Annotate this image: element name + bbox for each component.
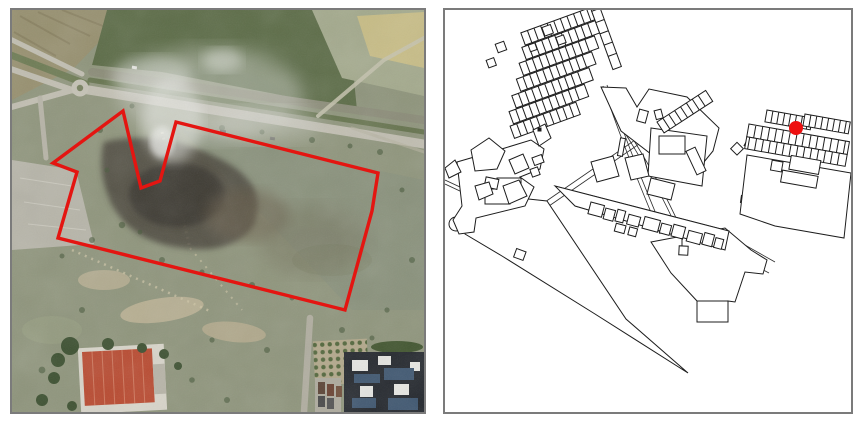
map-panel (443, 8, 853, 414)
figure-canvas (0, 0, 861, 422)
satellite-panel (10, 8, 426, 414)
satellite-image (12, 10, 424, 412)
grain-overlay (12, 10, 424, 412)
site-location-marker (789, 121, 803, 135)
building-footprint-map (445, 10, 851, 412)
